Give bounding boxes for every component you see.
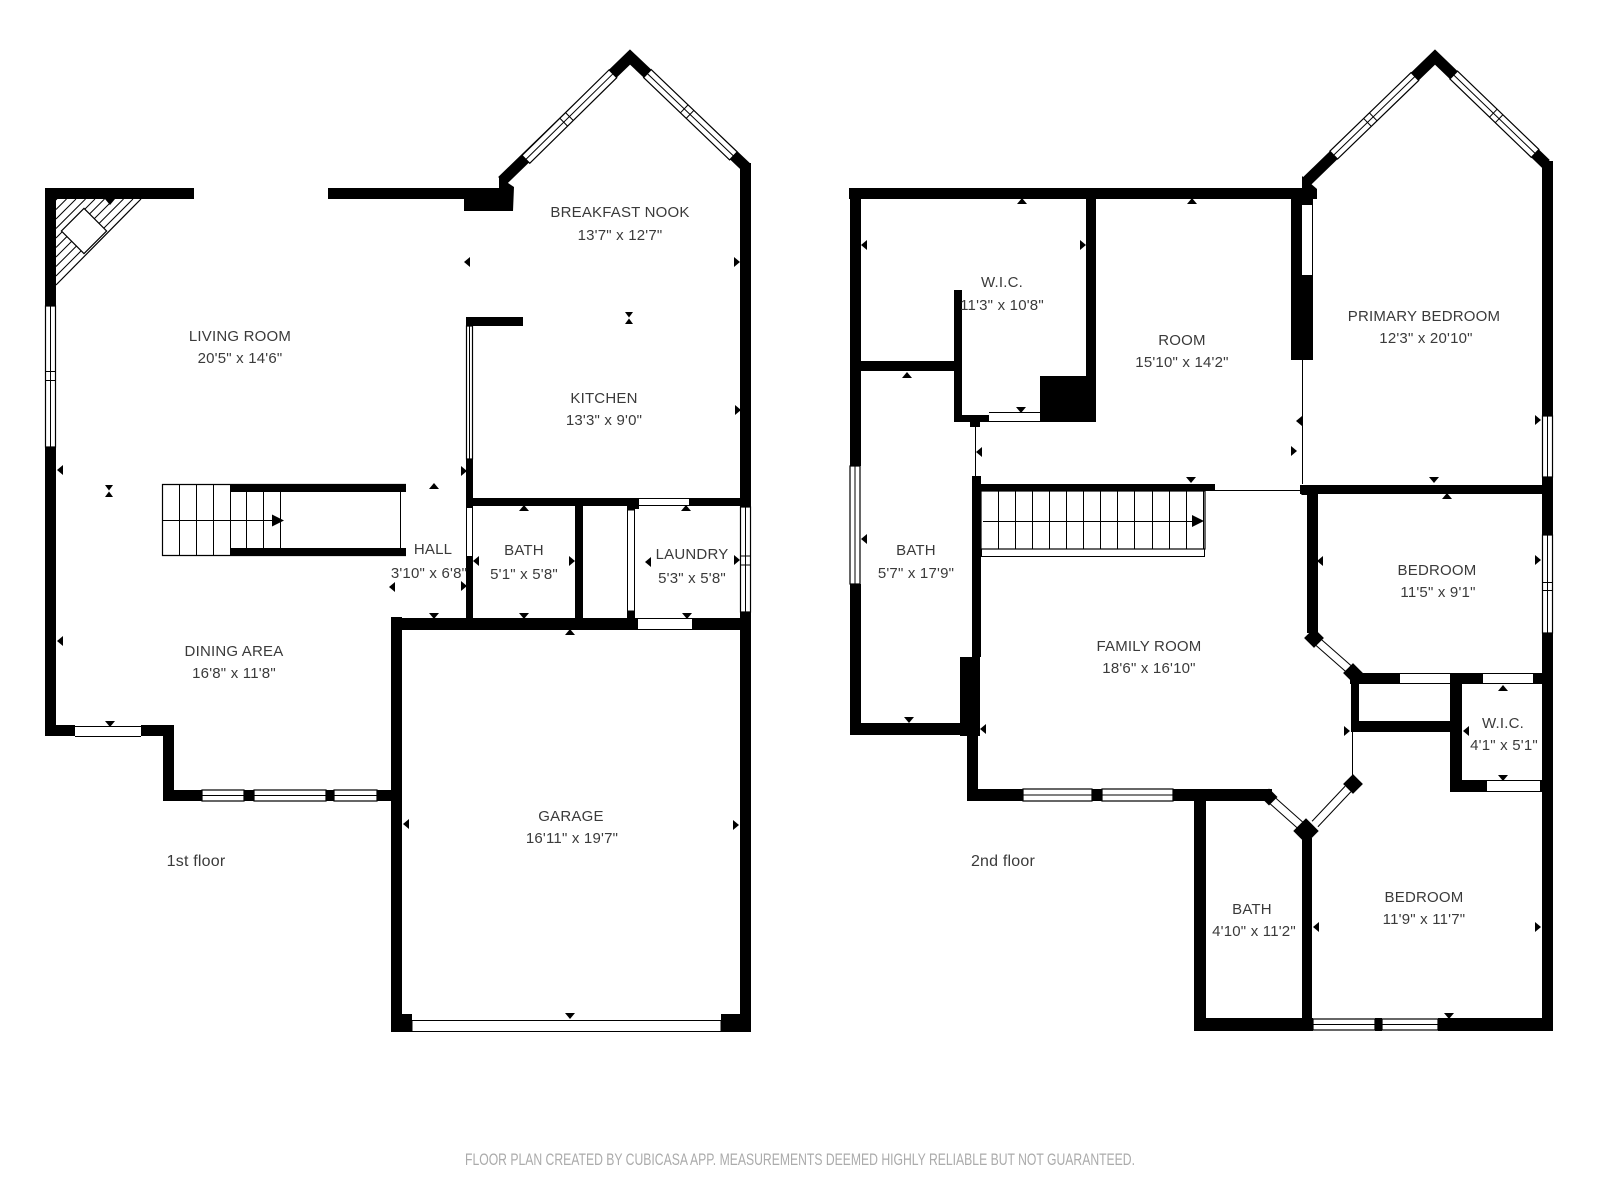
- svg-text:13'7" x 12'7": 13'7" x 12'7": [578, 227, 663, 244]
- svg-text:11'5" x 9'1": 11'5" x 9'1": [1400, 584, 1475, 601]
- svg-text:BATH: BATH: [896, 542, 936, 559]
- svg-text:5'3" x 5'8": 5'3" x 5'8": [658, 570, 726, 587]
- svg-text:KITCHEN: KITCHEN: [570, 390, 637, 407]
- svg-text:13'3" x 9'0": 13'3" x 9'0": [566, 412, 642, 429]
- svg-text:PRIMARY BEDROOM: PRIMARY BEDROOM: [1348, 308, 1500, 325]
- svg-text:DINING AREA: DINING AREA: [185, 643, 284, 660]
- svg-text:16'11" x 19'7": 16'11" x 19'7": [526, 830, 618, 847]
- svg-text:HALL: HALL: [414, 541, 452, 558]
- svg-text:5'7" x 17'9": 5'7" x 17'9": [878, 565, 954, 582]
- svg-text:BEDROOM: BEDROOM: [1385, 889, 1464, 906]
- svg-text:BREAKFAST NOOK: BREAKFAST NOOK: [550, 204, 689, 221]
- svg-text:16'8" x 11'8": 16'8" x 11'8": [192, 665, 276, 682]
- svg-text:W.I.C.: W.I.C.: [981, 274, 1023, 291]
- svg-text:BATH: BATH: [1232, 901, 1272, 918]
- svg-text:4'10" x 11'2": 4'10" x 11'2": [1212, 923, 1296, 940]
- svg-text:W.I.C.: W.I.C.: [1482, 715, 1524, 732]
- svg-text:4'1" x 5'1": 4'1" x 5'1": [1470, 737, 1538, 754]
- svg-text:15'10" x 14'2": 15'10" x 14'2": [1135, 354, 1228, 371]
- svg-text:LAUNDRY: LAUNDRY: [656, 546, 729, 563]
- svg-text:12'3" x 20'10": 12'3" x 20'10": [1379, 330, 1472, 347]
- svg-text:20'5" x 14'6": 20'5" x 14'6": [198, 350, 283, 367]
- svg-text:BEDROOM: BEDROOM: [1398, 562, 1477, 579]
- svg-text:BATH: BATH: [504, 542, 544, 559]
- svg-text:11'9" x 11'7": 11'9" x 11'7": [1383, 911, 1466, 928]
- svg-text:2nd floor: 2nd floor: [971, 853, 1036, 870]
- svg-text:1st floor: 1st floor: [167, 853, 226, 870]
- svg-text:FLOOR PLAN CREATED BY CUBICASA: FLOOR PLAN CREATED BY CUBICASA APP. MEAS…: [465, 1150, 1135, 1169]
- svg-text:3'10" x 6'8": 3'10" x 6'8": [391, 565, 467, 582]
- svg-text:FAMILY ROOM: FAMILY ROOM: [1097, 638, 1202, 655]
- svg-text:5'1" x 5'8": 5'1" x 5'8": [490, 566, 558, 583]
- svg-text:18'6" x 16'10": 18'6" x 16'10": [1102, 660, 1195, 677]
- svg-text:ROOM: ROOM: [1158, 332, 1205, 349]
- svg-text:GARAGE: GARAGE: [538, 808, 603, 825]
- svg-text:11'3" x 10'8": 11'3" x 10'8": [960, 297, 1044, 314]
- svg-text:LIVING ROOM: LIVING ROOM: [189, 328, 291, 345]
